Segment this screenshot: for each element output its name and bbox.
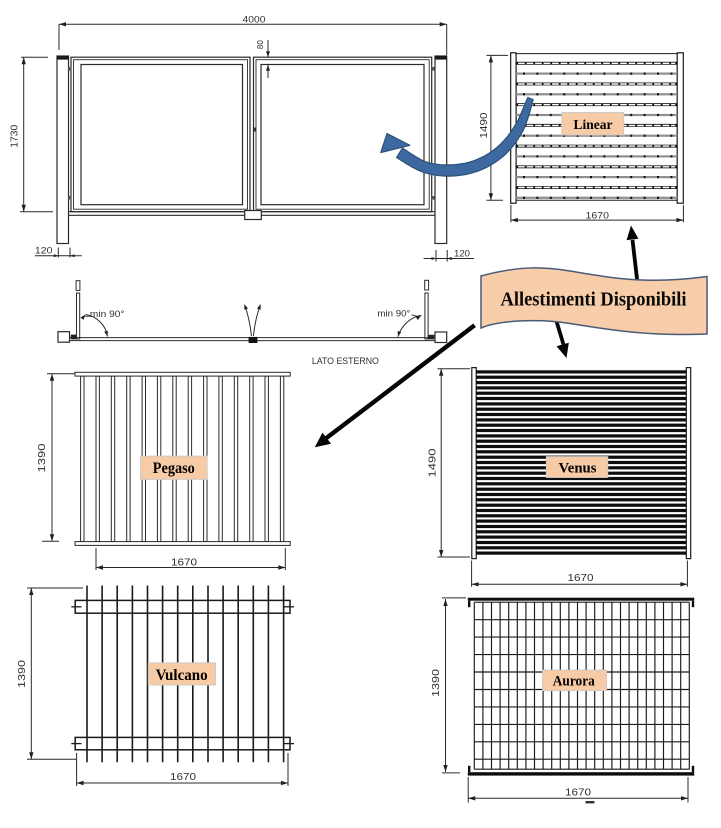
svg-text:1670: 1670: [170, 772, 197, 783]
svg-text:Venus: Venus: [559, 460, 597, 476]
svg-text:1730: 1730: [10, 124, 21, 148]
svg-text:120: 120: [35, 246, 53, 256]
svg-text:Vulcano: Vulcano: [156, 667, 208, 684]
svg-text:1490: 1490: [428, 448, 439, 478]
svg-text:1670: 1670: [171, 558, 198, 569]
svg-text:1390: 1390: [37, 443, 48, 473]
svg-text:1670: 1670: [568, 573, 595, 584]
svg-text:4000: 4000: [243, 15, 266, 26]
svg-text:Linear: Linear: [574, 117, 613, 132]
svg-text:Pegaso: Pegaso: [153, 460, 195, 477]
svg-text:1390: 1390: [17, 659, 28, 688]
svg-text:1490: 1490: [479, 112, 490, 139]
svg-text:LATO ESTERNO: LATO ESTERNO: [312, 356, 379, 366]
svg-text:min 90°: min 90°: [90, 309, 125, 319]
svg-text:1670: 1670: [565, 788, 592, 799]
svg-text:min 90°: min 90°: [377, 309, 410, 319]
svg-text:1670: 1670: [586, 210, 610, 221]
svg-text:80: 80: [256, 40, 265, 49]
svg-text:Allestimenti Disponibili: Allestimenti Disponibili: [501, 289, 687, 311]
svg-text:Aurora: Aurora: [553, 673, 596, 689]
svg-text:1390: 1390: [431, 668, 442, 697]
svg-text:120: 120: [454, 249, 470, 259]
